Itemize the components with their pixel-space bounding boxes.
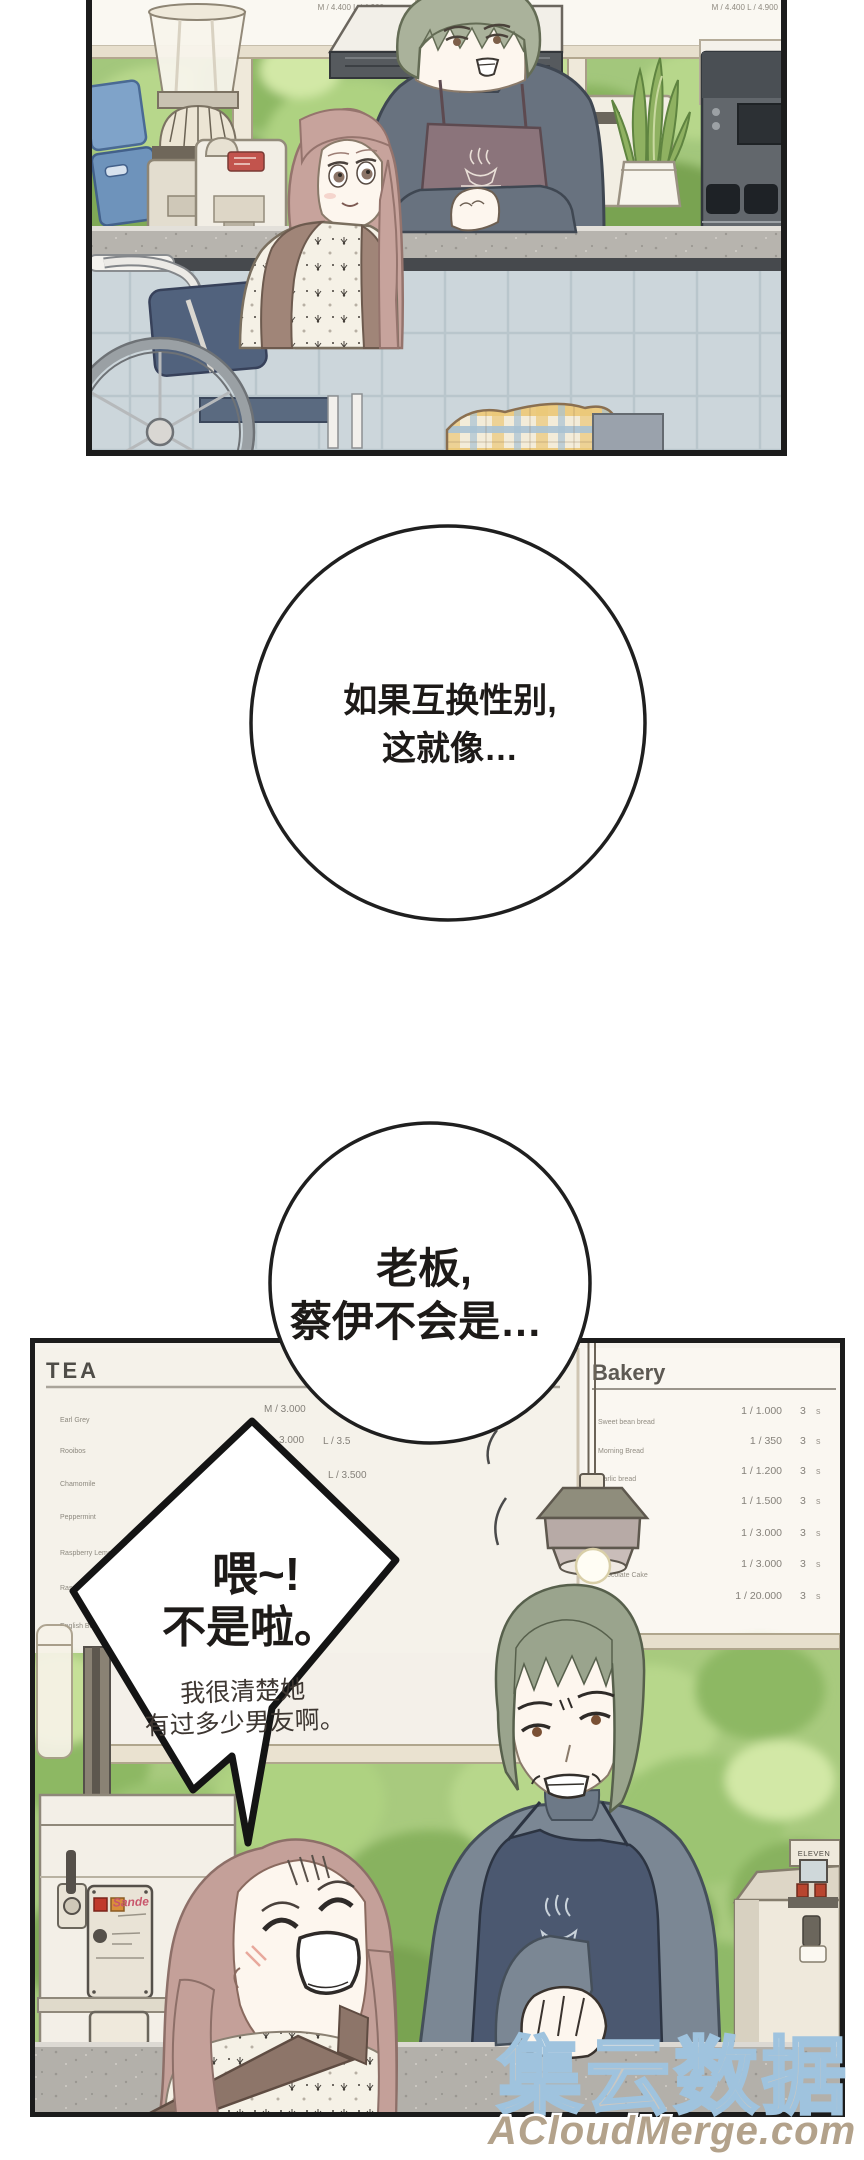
counter-lip (86, 258, 790, 271)
tea-price: M / 3.000 (264, 1404, 306, 1415)
bakery-size: 3 (800, 1495, 806, 1507)
bakery-size: 3 (800, 1405, 806, 1417)
woman-hair-front-left (173, 1980, 218, 2113)
espresso-machine-right (702, 52, 788, 232)
barista-top-arms (388, 186, 576, 232)
bakery-size-suffix: s (816, 1466, 821, 1476)
tea-item: Peppermint (60, 1514, 96, 1521)
bakery-size-suffix: s (816, 1436, 821, 1446)
shout-line1: 喂~! (212, 1548, 300, 1600)
top-panel-scene: M / 4.400 L / 4.900 English Breakfast M … (40, 0, 790, 526)
boiler-brand-label: ELEVEN (798, 1849, 831, 1858)
bakery-size: 3 (800, 1590, 806, 1602)
bakery-title: Bakery (592, 1360, 666, 1385)
shout-sub1: 我很清楚她 (180, 1676, 306, 1708)
bakery-size-suffix: s (816, 1528, 821, 1538)
bakery-price: 1 / 3.000 (741, 1558, 782, 1570)
thought-top-line2: 这就像… (382, 730, 518, 768)
tea-price: 3.000 (279, 1435, 304, 1446)
shout-line2: 不是啦。 (162, 1603, 338, 1652)
tea-price: L / 3.5 (323, 1436, 351, 1447)
tea-price: L / 3.500 (328, 1470, 367, 1481)
comic-art: M / 4.400 L / 4.900 English Breakfast M … (0, 0, 864, 2160)
watermark-url: ACloudMerge.com (487, 2109, 856, 2153)
thought-mid-line1: 老板, (376, 1245, 472, 1292)
wheelchair-seat (200, 398, 332, 422)
bakery-size: 3 (800, 1558, 806, 1570)
barista-bottom-grin (545, 1775, 588, 1798)
plaid-blanket (447, 404, 614, 458)
bakery-price: 1 / 1.200 (741, 1465, 782, 1477)
barista-top-mouth (477, 59, 498, 76)
espresso-brand-label: Sande (113, 1894, 150, 1909)
small-espresso-machine (196, 138, 286, 234)
bakery-size-suffix: s (816, 1496, 821, 1506)
bakery-size-suffix: s (816, 1591, 821, 1601)
tea-item: Earl Grey (60, 1417, 90, 1424)
bakery-size-suffix: s (816, 1406, 821, 1416)
bakery-price: 1 / 350 (750, 1435, 782, 1447)
bakery-price: 1 / 20.000 (735, 1590, 782, 1602)
thought-bubble-top: 如果互换性别, 这就像… (251, 526, 645, 920)
bakery-price: 1 / 1.000 (741, 1405, 782, 1417)
thought-mid-line2: 蔡伊不会是… (290, 1298, 542, 1345)
thought-top-line1: 如果互换性别, (343, 682, 556, 720)
tea-item: Chamomile (60, 1481, 96, 1488)
bakery-item: Morning Bread (598, 1448, 644, 1455)
woman-bottom-mouth (298, 1932, 359, 1993)
comic-page: M / 4.400 L / 4.900 English Breakfast M … (0, 0, 864, 2160)
bakery-item: Sweet bean bread (598, 1419, 655, 1426)
bakery-price: 1 / 3.000 (741, 1527, 782, 1539)
bakery-price: 1 / 1.500 (741, 1495, 782, 1507)
tea-title: TEA (46, 1358, 99, 1383)
watermark: 集云数据 ACloudMerge.com (487, 2030, 856, 2153)
tea-item: Rooibos (60, 1448, 86, 1455)
barista-top-hand (451, 188, 499, 230)
bakery-size-suffix: s (816, 1559, 821, 1569)
bottom-panel-scene: TEA Earl Grey Rooibos Chamomile Peppermi… (10, 1343, 864, 2113)
bakery-size: 3 (800, 1435, 806, 1447)
bakery-size: 3 (800, 1527, 806, 1539)
bakery-size: 3 (800, 1465, 806, 1477)
menu-price-right: M / 4.400 L / 4.900 (712, 3, 779, 12)
woman-top-face (318, 140, 382, 228)
